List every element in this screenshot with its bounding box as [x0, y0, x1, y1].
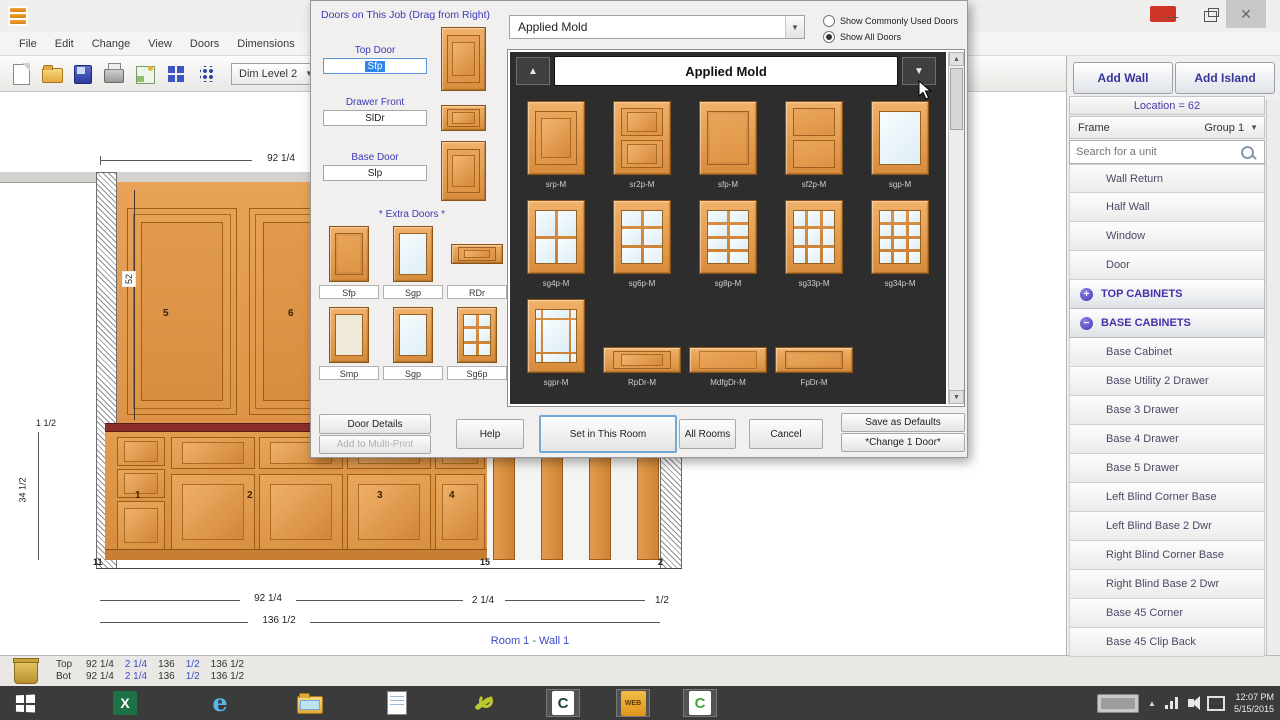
- start-icon[interactable]: [8, 689, 42, 717]
- upper-door: [127, 208, 237, 415]
- sidebar-item-wall-return[interactable]: Wall Return: [1069, 164, 1265, 193]
- catalog-door-item[interactable]: sg8p-M: [685, 191, 771, 290]
- menu-item-edit[interactable]: Edit: [46, 35, 83, 53]
- dimension-readout: Top92 1/42 1/41361/2136 1/2Bot92 1/42 1/…: [56, 659, 255, 683]
- menu-item-dimensions[interactable]: Dimensions: [228, 35, 303, 53]
- sidebar-item-base-cabinet[interactable]: Base Cabinet: [1069, 338, 1265, 367]
- catalog-door-label: sg6p-M: [629, 279, 656, 288]
- catalog-prev-button[interactable]: ▲: [516, 57, 550, 85]
- bottom-dim-label-4: 136 1/2: [248, 615, 310, 626]
- catalog-door-thumbnail: [527, 101, 585, 175]
- sidebar-item-half-wall[interactable]: Half Wall: [1069, 193, 1265, 222]
- trash-icon[interactable]: [14, 660, 38, 684]
- tray-date: 5/15/2015: [1234, 703, 1274, 715]
- status-value: 136 1/2: [211, 671, 244, 683]
- catalog-scrollbar[interactable]: ▲ ▼: [948, 52, 964, 404]
- catalog-door-item[interactable]: sg6p-M: [599, 191, 685, 290]
- sidebar-item-base-4-drawer[interactable]: Base 4 Drawer: [1069, 425, 1265, 454]
- drawer-front-input[interactable]: SlDr: [323, 110, 427, 126]
- extra-door-label: RDr: [447, 285, 507, 299]
- door-panel: [171, 474, 255, 550]
- room-wall-caption: Room 1 - Wall 1: [455, 635, 605, 647]
- catalog-door-item[interactable]: sgpr-M: [513, 290, 599, 389]
- restore-icon: [1204, 11, 1217, 22]
- section-header-base-cabinets[interactable]: −BASE CABINETS: [1069, 309, 1265, 338]
- dim-level-dropdown[interactable]: Dim Level 2▼: [231, 63, 318, 85]
- catalog-door-label: sr2p-M: [630, 180, 655, 189]
- door-style-dropdown[interactable]: Applied Mold ▼: [509, 15, 805, 39]
- extra-door-thumbnail: [329, 307, 369, 363]
- catalog-door-item[interactable]: sg34p-M: [857, 191, 943, 290]
- catalog-door-item[interactable]: FpDr-M: [771, 290, 857, 389]
- floor-label: 11: [93, 557, 103, 567]
- catalog-door-label: srp-M: [546, 180, 566, 189]
- radio-show-all[interactable]: Show All Doors: [823, 29, 958, 45]
- status-value: 1/2: [186, 659, 200, 671]
- frame-group-selector[interactable]: Frame Group 1 ▼: [1069, 116, 1265, 139]
- base-height-dim-label: 34 1/2: [17, 475, 29, 504]
- sidebar-scrollbar[interactable]: [1266, 100, 1280, 655]
- catalog-door-item[interactable]: sf2p-M: [771, 92, 857, 191]
- recorder-display: [1097, 694, 1139, 713]
- mouse-cursor: [918, 80, 932, 100]
- notepad-icon[interactable]: [380, 689, 414, 717]
- catalog-door-label: sf2p-M: [802, 180, 826, 189]
- sidebar-item-base-5-drawer[interactable]: Base 5 Drawer: [1069, 454, 1265, 483]
- catalog-door-thumbnail: [785, 200, 843, 274]
- status-row-label: Bot: [56, 671, 86, 683]
- sidebar-item-door[interactable]: Door: [1069, 251, 1265, 280]
- sidebar-item-left-blind-base-2-dwr[interactable]: Left Blind Base 2 Dwr: [1069, 512, 1265, 541]
- catalog-style-header: Applied Mold: [554, 56, 898, 86]
- door-selection-dialog: Doors on This Job (Drag from Right) Top …: [310, 0, 968, 458]
- save-project-icon[interactable]: [72, 63, 94, 85]
- floor-line: [96, 568, 682, 569]
- extra-door-cell[interactable]: Sfp: [319, 223, 379, 299]
- restore-button[interactable]: [1196, 4, 1224, 28]
- catalog-door-item[interactable]: RpDr-M: [599, 290, 685, 389]
- catalog-door-label: sg34p-M: [884, 279, 915, 288]
- upper-height-label: 52: [122, 271, 136, 287]
- sidebar-item-window[interactable]: Window: [1069, 222, 1265, 251]
- bottom-dim-label-2: 2 1/4: [462, 595, 504, 606]
- radio-commonly-used[interactable]: Show Commonly Used Doors: [823, 13, 958, 29]
- catalog-door-label: sfp-M: [718, 180, 738, 189]
- unit-number-1: 1: [135, 490, 141, 501]
- door-panel: [435, 474, 485, 550]
- sidebar-item-right-blind-corner-base[interactable]: Right Blind Corner Base: [1069, 541, 1265, 570]
- display-icon[interactable]: [1207, 696, 1225, 711]
- unit-number-5: 5: [163, 308, 169, 319]
- bottom-dim-label-3: 1/2: [646, 595, 678, 606]
- chevron-down-icon: ▼: [1250, 123, 1264, 132]
- top-dimension-label: 92 1/4: [252, 153, 310, 164]
- status-value: 2 1/4: [125, 659, 147, 671]
- group-value: Group 1: [1204, 122, 1250, 134]
- status-value: 136 1/2: [211, 659, 244, 671]
- door-panel: [259, 474, 343, 550]
- status-value: 92 1/4: [86, 659, 114, 671]
- field-door-preview: [441, 105, 486, 131]
- extra-door-cell[interactable]: Smp: [319, 304, 379, 380]
- save-as-defaults-button[interactable]: Save as Defaults: [841, 413, 965, 432]
- dim-level-value: Dim Level 2: [239, 68, 297, 80]
- counter-dim-label: 1 1/2: [26, 418, 66, 428]
- catalog-door-item[interactable]: sfp-M: [685, 92, 771, 191]
- menu-item-file[interactable]: File: [10, 35, 46, 53]
- drawer-panel: [171, 437, 255, 469]
- screen: { "window": { "menu": ["File","Edit","Ch…: [0, 0, 1280, 720]
- extra-door-thumbnail: [329, 226, 369, 282]
- door-panel: [347, 474, 431, 550]
- extra-door-label: Smp: [319, 366, 379, 380]
- top-door-label: Top Door: [323, 45, 427, 56]
- unit-number-6: 6: [288, 308, 294, 319]
- extra-door-label: Sgp: [383, 285, 443, 299]
- cabinet-green-icon[interactable]: C: [683, 689, 717, 717]
- set-in-this-room-button[interactable]: Set in This Room: [539, 415, 677, 453]
- bottom-dim-line-1b: [505, 600, 645, 601]
- menu-item-view[interactable]: View: [139, 35, 181, 53]
- catalog-door-thumbnail: [871, 101, 929, 175]
- status-value: 136: [158, 671, 175, 683]
- door-filter-radios: Show Commonly Used Doors Show All Doors: [823, 13, 958, 45]
- catalog-door-label: sg8p-M: [715, 279, 742, 288]
- section-label: BASE CABINETS: [1101, 317, 1191, 329]
- tray-time: 12:07 PM: [1234, 691, 1274, 703]
- extra-door-thumbnail: [451, 244, 503, 264]
- extra-door-label: Sg6p: [447, 366, 507, 380]
- scroll-down-icon[interactable]: ▼: [949, 390, 964, 404]
- extra-door-label: Sfp: [319, 285, 379, 299]
- catalog-door-item[interactable]: sr2p-M: [599, 92, 685, 191]
- change-1-door-button[interactable]: *Change 1 Door*: [841, 433, 965, 452]
- scroll-up-icon[interactable]: ▲: [949, 52, 964, 66]
- catalog-door-thumbnail: [527, 299, 585, 373]
- catalog-door-thumbnail: [699, 101, 757, 175]
- windows-taskbar: ▲ 12:07 PM 5/15/2015 XeCWEBC: [0, 686, 1280, 720]
- catalog-door-thumbnail: [689, 347, 767, 373]
- add-wall-button[interactable]: Add Wall: [1073, 62, 1173, 94]
- menu-item-doors[interactable]: Doors: [181, 35, 228, 53]
- system-tray: ▲ 12:07 PM 5/15/2015: [1097, 686, 1274, 720]
- chevron-down-icon: ▼: [785, 16, 804, 38]
- catalog-door-thumbnail: [603, 347, 681, 373]
- clock[interactable]: 12:07 PM 5/15/2015: [1234, 691, 1274, 715]
- extra-door-thumbnail: [393, 226, 433, 282]
- floor-label: 2: [658, 557, 663, 567]
- menu-item-change[interactable]: Change: [83, 35, 140, 53]
- frame-label: Frame: [1070, 122, 1204, 134]
- help-button[interactable]: Help: [456, 419, 524, 449]
- catalog-door-grid: srp-Msr2p-Msfp-Msf2p-Msgp-Msg4p-Msg6p-Ms…: [513, 92, 943, 389]
- extra-doors-title: * Extra Doors *: [319, 209, 505, 220]
- minimize-button[interactable]: —: [1158, 4, 1186, 28]
- add-island-button[interactable]: Add Island: [1175, 62, 1275, 94]
- sidebar-item-left-blind-corner-base[interactable]: Left Blind Corner Base: [1069, 483, 1265, 512]
- cancel-button[interactable]: Cancel: [749, 419, 823, 449]
- catalog-door-thumbnail: [775, 347, 853, 373]
- open-folder-icon[interactable]: [41, 63, 63, 85]
- drawer-panel: [117, 501, 165, 550]
- catalog-door-item[interactable]: srp-M: [513, 92, 599, 191]
- door-catalog-panel: ▲ Applied Mold ▼ srp-Msr2p-Msfp-Msf2p-Ms…: [510, 52, 946, 404]
- section-header-top-cabinets[interactable]: +TOP CABINETS: [1069, 280, 1265, 309]
- sidebar-item-base-utility-2-drawer[interactable]: Base Utility 2 Drawer: [1069, 367, 1265, 396]
- collapse-icon: −: [1080, 317, 1093, 330]
- bottom-dim-line-2: [100, 622, 660, 623]
- extra-door-cell[interactable]: Sg6p: [447, 304, 507, 380]
- extra-door-label: Sgp: [383, 366, 443, 380]
- excel-icon[interactable]: X: [108, 689, 142, 717]
- dim-tick: [100, 156, 101, 165]
- drawer-panel: [117, 469, 165, 498]
- door-catalog-icon[interactable]: [165, 63, 187, 85]
- extra-door-thumbnail: [457, 307, 497, 363]
- door-style-value: Applied Mold: [510, 20, 785, 34]
- drawer-panel: [117, 437, 165, 466]
- file-explorer-icon[interactable]: [293, 689, 327, 717]
- catalog-door-item[interactable]: MdfgDr-M: [685, 290, 771, 389]
- unit-list: Wall ReturnHalf WallWindowDoor+TOP CABIN…: [1069, 164, 1265, 657]
- field-door-preview: [441, 141, 486, 201]
- extra-door-cell[interactable]: RDr: [447, 223, 507, 299]
- door-details-button[interactable]: Door Details: [319, 414, 431, 434]
- catalog-door-thumbnail: [527, 200, 585, 274]
- sidebar-item-base-45-clip-back[interactable]: Base 45 Clip Back: [1069, 628, 1265, 657]
- status-value: 1/2: [186, 671, 200, 683]
- volume-icon[interactable]: [1188, 699, 1194, 707]
- bottom-dim-label-1: 92 1/4: [240, 593, 296, 604]
- close-button[interactable]: ✕: [1226, 0, 1266, 28]
- catalog-door-item[interactable]: sgp-M: [857, 92, 943, 191]
- sidebar-item-right-blind-base-2-dwr[interactable]: Right Blind Base 2 Dwr: [1069, 570, 1265, 599]
- catalog-door-thumbnail: [871, 200, 929, 274]
- catalog-door-label: sgp-M: [889, 180, 911, 189]
- status-row: Top92 1/42 1/41361/2136 1/2: [56, 659, 255, 671]
- settings-dots-icon[interactable]: [196, 63, 218, 85]
- web-app-icon[interactable]: WEB: [616, 689, 650, 717]
- catalog-door-thumbnail: [785, 101, 843, 175]
- catalog-door-thumbnail: [613, 200, 671, 274]
- expand-icon: +: [1080, 288, 1093, 301]
- unit-search[interactable]: [1069, 140, 1265, 164]
- catalog-door-label: sg4p-M: [543, 279, 570, 288]
- base-door-label: Base Door: [323, 152, 427, 163]
- base-door-input[interactable]: Slp: [323, 165, 427, 181]
- catalog-door-label: RpDr-M: [628, 378, 656, 387]
- wrench-tool-icon[interactable]: [466, 689, 500, 717]
- internet-explorer-icon[interactable]: e: [203, 689, 237, 717]
- catalog-door-item[interactable]: sg33p-M: [771, 191, 857, 290]
- preview-icon[interactable]: [134, 63, 156, 85]
- search-input[interactable]: [1070, 145, 1241, 159]
- status-row: Bot92 1/42 1/41361/2136 1/2: [56, 671, 255, 683]
- extra-door-cell[interactable]: Sgp: [383, 223, 443, 299]
- extra-doors-grid: SfpSgpRDrSmpSgpSg6p: [319, 223, 507, 380]
- sidebar-item-base-3-drawer[interactable]: Base 3 Drawer: [1069, 396, 1265, 425]
- extra-door-cell[interactable]: Sgp: [383, 304, 443, 380]
- catalog-door-thumbnail: [699, 200, 757, 274]
- network-icon[interactable]: [1165, 697, 1179, 709]
- statusbar: Top92 1/42 1/41361/2136 1/2Bot92 1/42 1/…: [0, 655, 1280, 687]
- section-label: TOP CABINETS: [1101, 288, 1183, 300]
- catalog-door-label: FpDr-M: [800, 378, 827, 387]
- upper-height-dim: [134, 190, 135, 420]
- print-icon[interactable]: [103, 63, 125, 85]
- unit-number-2: 2: [247, 490, 253, 501]
- field-door-preview: [441, 27, 486, 91]
- all-rooms-button[interactable]: All Rooms: [679, 419, 736, 449]
- catalog-door-label: sgpr-M: [544, 378, 569, 387]
- door-catalog: ▲ Applied Mold ▼ srp-Msr2p-Msfp-Msf2p-Ms…: [507, 49, 965, 407]
- extra-door-thumbnail: [393, 307, 433, 363]
- status-row-label: Top: [56, 659, 86, 671]
- drawer-front-label: Drawer Front: [323, 97, 427, 108]
- top-door-input[interactable]: Sfp: [323, 58, 427, 74]
- status-value: 92 1/4: [86, 671, 114, 683]
- toe-kick: [105, 549, 487, 560]
- floor-label: 15: [480, 557, 490, 567]
- catalog-door-item[interactable]: sg4p-M: [513, 191, 599, 290]
- radio-icon: [823, 15, 835, 27]
- tray-expand-icon[interactable]: ▲: [1148, 699, 1156, 708]
- status-value: 2 1/4: [125, 671, 147, 683]
- scrollbar-thumb[interactable]: [950, 68, 963, 130]
- location-indicator: Location = 62: [1069, 96, 1265, 115]
- unit-number-3: 3: [377, 490, 383, 501]
- dialog-title: Doors on This Job (Drag from Right): [321, 9, 490, 21]
- unit-sidebar: Add Wall Add Island Location = 62 Frame …: [1066, 56, 1280, 655]
- catalog-door-label: MdfgDr-M: [710, 378, 746, 387]
- new-document-icon[interactable]: [10, 63, 32, 85]
- status-value: 136: [158, 659, 175, 671]
- unit-number-4: 4: [449, 490, 455, 501]
- sidebar-item-base-45-corner[interactable]: Base 45 Corner: [1069, 599, 1265, 628]
- catalog-door-thumbnail: [613, 101, 671, 175]
- app-icon: [8, 6, 28, 26]
- base-height-dim-line: [38, 432, 39, 560]
- cabinet-app-icon[interactable]: C: [546, 689, 580, 717]
- add-to-multiprint-button[interactable]: Add to Multi-Print: [319, 435, 431, 454]
- search-icon: [1241, 146, 1254, 159]
- radio-icon-selected: [823, 31, 835, 43]
- catalog-door-label: sg33p-M: [798, 279, 829, 288]
